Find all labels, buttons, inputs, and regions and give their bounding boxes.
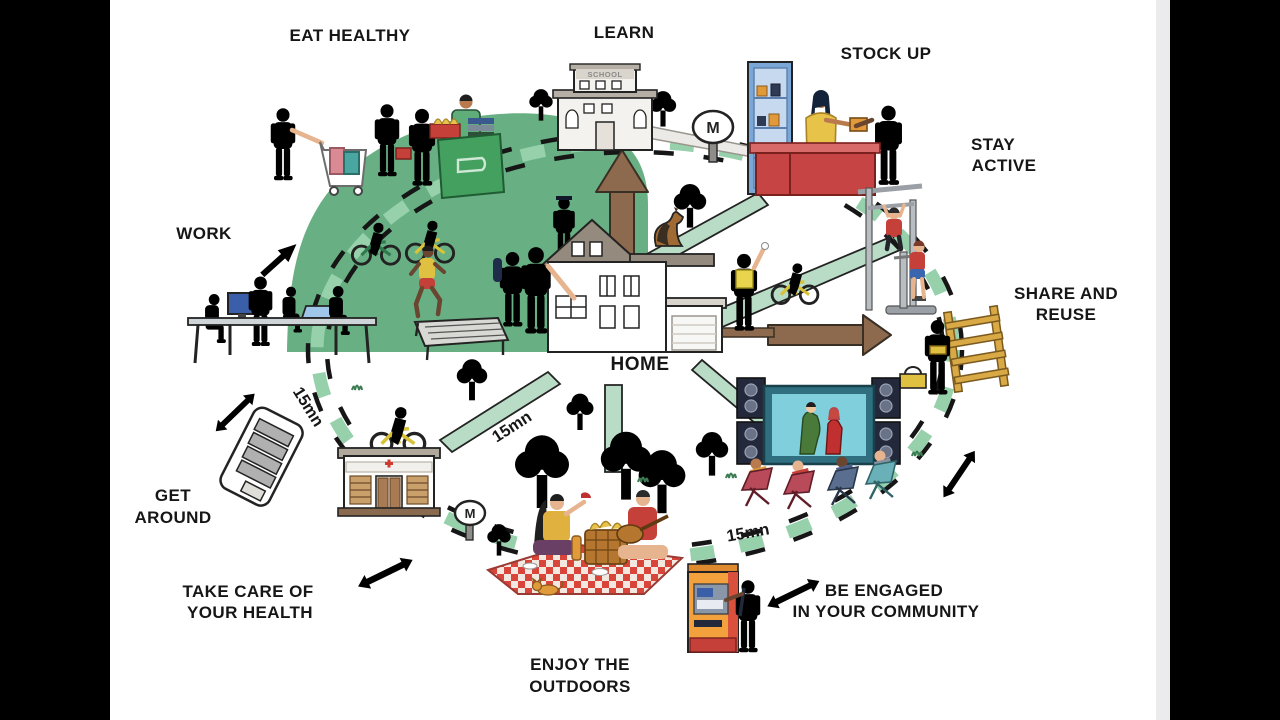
fifteen-minute-city-illustration: SCHOOL M: [0, 0, 1280, 720]
atm-keypad: [694, 620, 722, 627]
shopping-basket-red: [396, 148, 411, 159]
label-eat-healthy: EAT HEALTHY: [290, 26, 411, 45]
label-home: HOME: [611, 354, 670, 375]
label-share-reuse-1: SHARE AND: [1014, 284, 1118, 303]
safety-vest: [736, 270, 753, 288]
arrow-home-to-right: [768, 325, 863, 345]
label-stay-active-2: ACTIVE: [972, 156, 1037, 175]
letterbox-left: [0, 0, 110, 720]
label-work: WORK: [176, 224, 232, 243]
video-frame: SCHOOL M: [0, 0, 1280, 720]
power-tool: [930, 346, 946, 354]
woman-legs: [533, 540, 575, 555]
bread-basket: [430, 124, 460, 138]
label-outdoors-2: OUTDOORS: [529, 677, 630, 696]
label-community-2: IN YOUR COMMUNITY: [793, 602, 980, 621]
metro-m-text: M: [706, 120, 719, 137]
label-get-around-1: GET: [155, 486, 191, 505]
label-learn: LEARN: [594, 23, 655, 42]
label-share-reuse-2: REUSE: [1036, 305, 1097, 324]
right-gray-strip: [1156, 0, 1170, 720]
school-sign-text: SCHOOL: [587, 70, 622, 79]
shop-counter-top: [750, 143, 880, 153]
label-get-around-2: AROUND: [134, 508, 211, 527]
bottle: [572, 536, 581, 560]
garage-door: [672, 316, 716, 350]
toolbox: [900, 374, 926, 388]
label-stay-active-1: STAY: [971, 135, 1015, 154]
label-community-1: BE ENGAGED: [825, 581, 943, 600]
label-stock-up: STOCK UP: [841, 44, 932, 63]
backpack: [493, 258, 502, 282]
metro-m-text-2: M: [465, 506, 476, 521]
label-health-2: YOUR HEALTH: [187, 603, 313, 622]
label-health-1: TAKE CARE OF: [182, 582, 313, 601]
shop-counter: [756, 153, 875, 195]
clinic-door: [376, 476, 402, 510]
guitar-body: [617, 525, 643, 543]
label-outdoors-1: ENJOY THE: [530, 655, 630, 674]
market-counter: [438, 134, 504, 198]
school-door: [596, 122, 614, 150]
letterbox-right: [1170, 0, 1280, 720]
crossed-legs: [618, 545, 668, 559]
